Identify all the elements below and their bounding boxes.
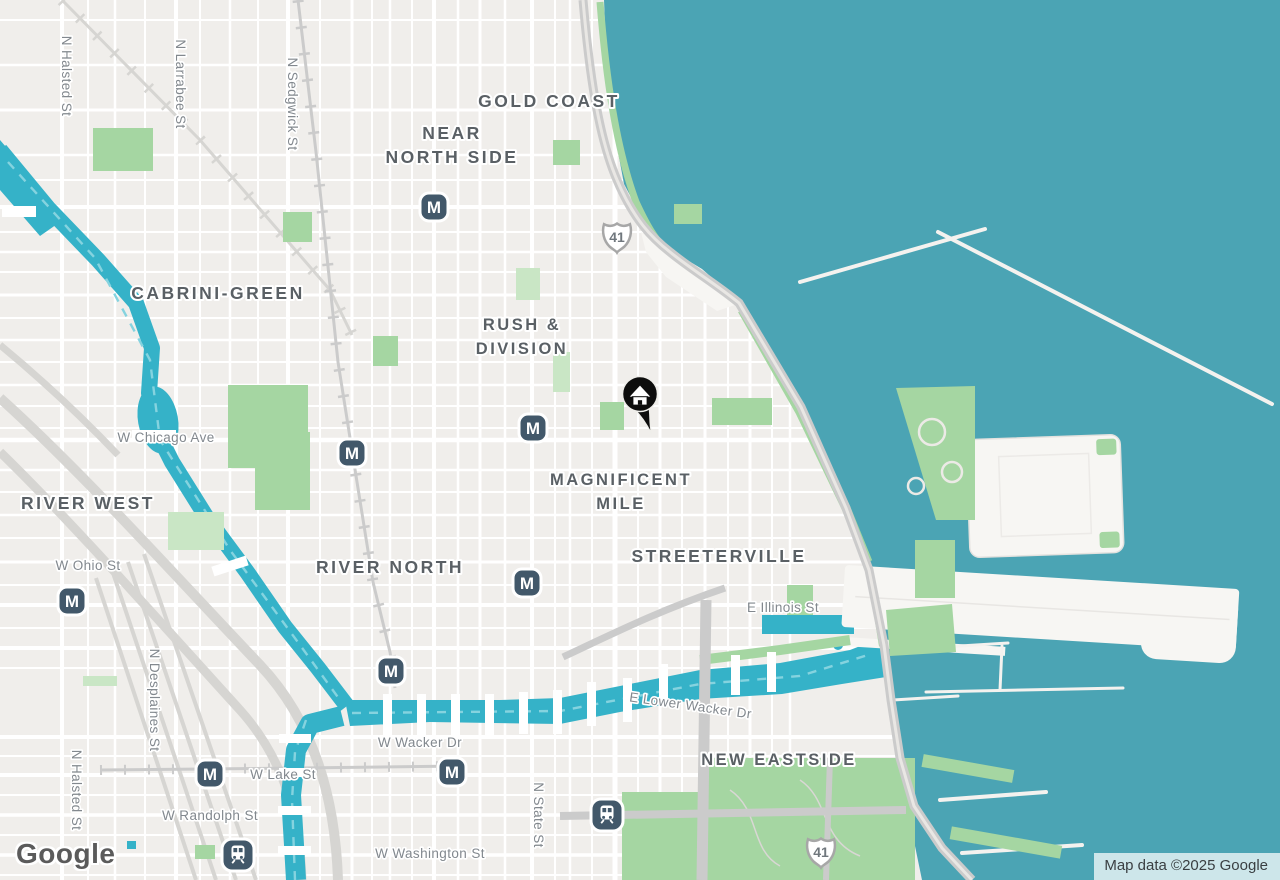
- metro-m-icon[interactable]: M: [196, 760, 224, 788]
- neighborhood-label[interactable]: GOLD COAST: [478, 91, 620, 111]
- metro-m-icon[interactable]: M: [438, 758, 466, 786]
- svg-text:41: 41: [813, 844, 829, 860]
- water-filtration-plant: [966, 434, 1124, 557]
- street-label: N Desplaines St: [147, 649, 162, 752]
- street-label: W Washington St: [375, 846, 485, 861]
- svg-text:M: M: [526, 419, 540, 438]
- street-label: N Halsted St: [69, 750, 84, 831]
- metro-m-icon[interactable]: M: [420, 193, 448, 221]
- neighborhood-label[interactable]: MAGNIFICENT: [550, 471, 692, 489]
- street-label: W Lake St: [250, 767, 316, 782]
- street-label: N Halsted St: [59, 36, 74, 117]
- street-label: W Chicago Ave: [117, 430, 214, 445]
- street-label: N Larrabee St: [173, 39, 188, 128]
- svg-text:M: M: [345, 444, 359, 463]
- neighborhood-label[interactable]: CABRINI-GREEN: [131, 283, 304, 303]
- map-attribution: Map data ©2025 Google: [1094, 853, 1280, 880]
- street-label: N State St: [531, 782, 546, 848]
- street-label: E Illinois St: [747, 600, 819, 615]
- train-icon[interactable]: [222, 839, 254, 871]
- neighborhood-label[interactable]: NEW EASTSIDE: [701, 751, 857, 769]
- neighborhood-label[interactable]: MILE: [596, 495, 645, 513]
- svg-text:41: 41: [609, 229, 625, 245]
- google-maps-view: 4141 N Halsted StN Larrabee StN Sedgwick…: [0, 0, 1280, 880]
- svg-text:M: M: [427, 198, 441, 217]
- neighborhood-label[interactable]: NORTH SIDE: [386, 147, 519, 167]
- columbus-drive: [702, 600, 706, 880]
- svg-text:M: M: [65, 592, 79, 611]
- neighborhood-label[interactable]: RIVER NORTH: [316, 557, 464, 577]
- metro-m-icon[interactable]: M: [513, 569, 541, 597]
- street-label: W Randolph St: [162, 808, 258, 823]
- svg-text:M: M: [520, 574, 534, 593]
- svg-text:M: M: [445, 763, 459, 782]
- map-canvas[interactable]: 4141 N Halsted StN Larrabee StN Sedgwick…: [0, 0, 1280, 880]
- neighborhood-label[interactable]: NEAR: [422, 123, 482, 143]
- neighborhood-label[interactable]: RIVER WEST: [21, 493, 155, 513]
- ogden-slip: [762, 615, 854, 634]
- street-label: W Wacker Dr: [378, 735, 462, 750]
- street-label: N Sedgwick St: [285, 58, 300, 151]
- metro-m-icon[interactable]: M: [377, 657, 405, 685]
- neighborhood-label[interactable]: DIVISION: [476, 340, 568, 358]
- svg-text:M: M: [384, 662, 398, 681]
- street-label: W Ohio St: [55, 558, 120, 573]
- svg-text:M: M: [203, 765, 217, 784]
- neighborhood-label[interactable]: STREETERVILLE: [631, 546, 806, 566]
- metro-m-icon[interactable]: M: [338, 439, 366, 467]
- metro-m-icon[interactable]: M: [519, 414, 547, 442]
- google-logo[interactable]: Google: [16, 838, 115, 870]
- train-icon[interactable]: [591, 799, 623, 831]
- metro-m-icon[interactable]: M: [58, 587, 86, 615]
- neighborhood-label[interactable]: RUSH &: [483, 316, 561, 334]
- dusable-park: [886, 604, 956, 656]
